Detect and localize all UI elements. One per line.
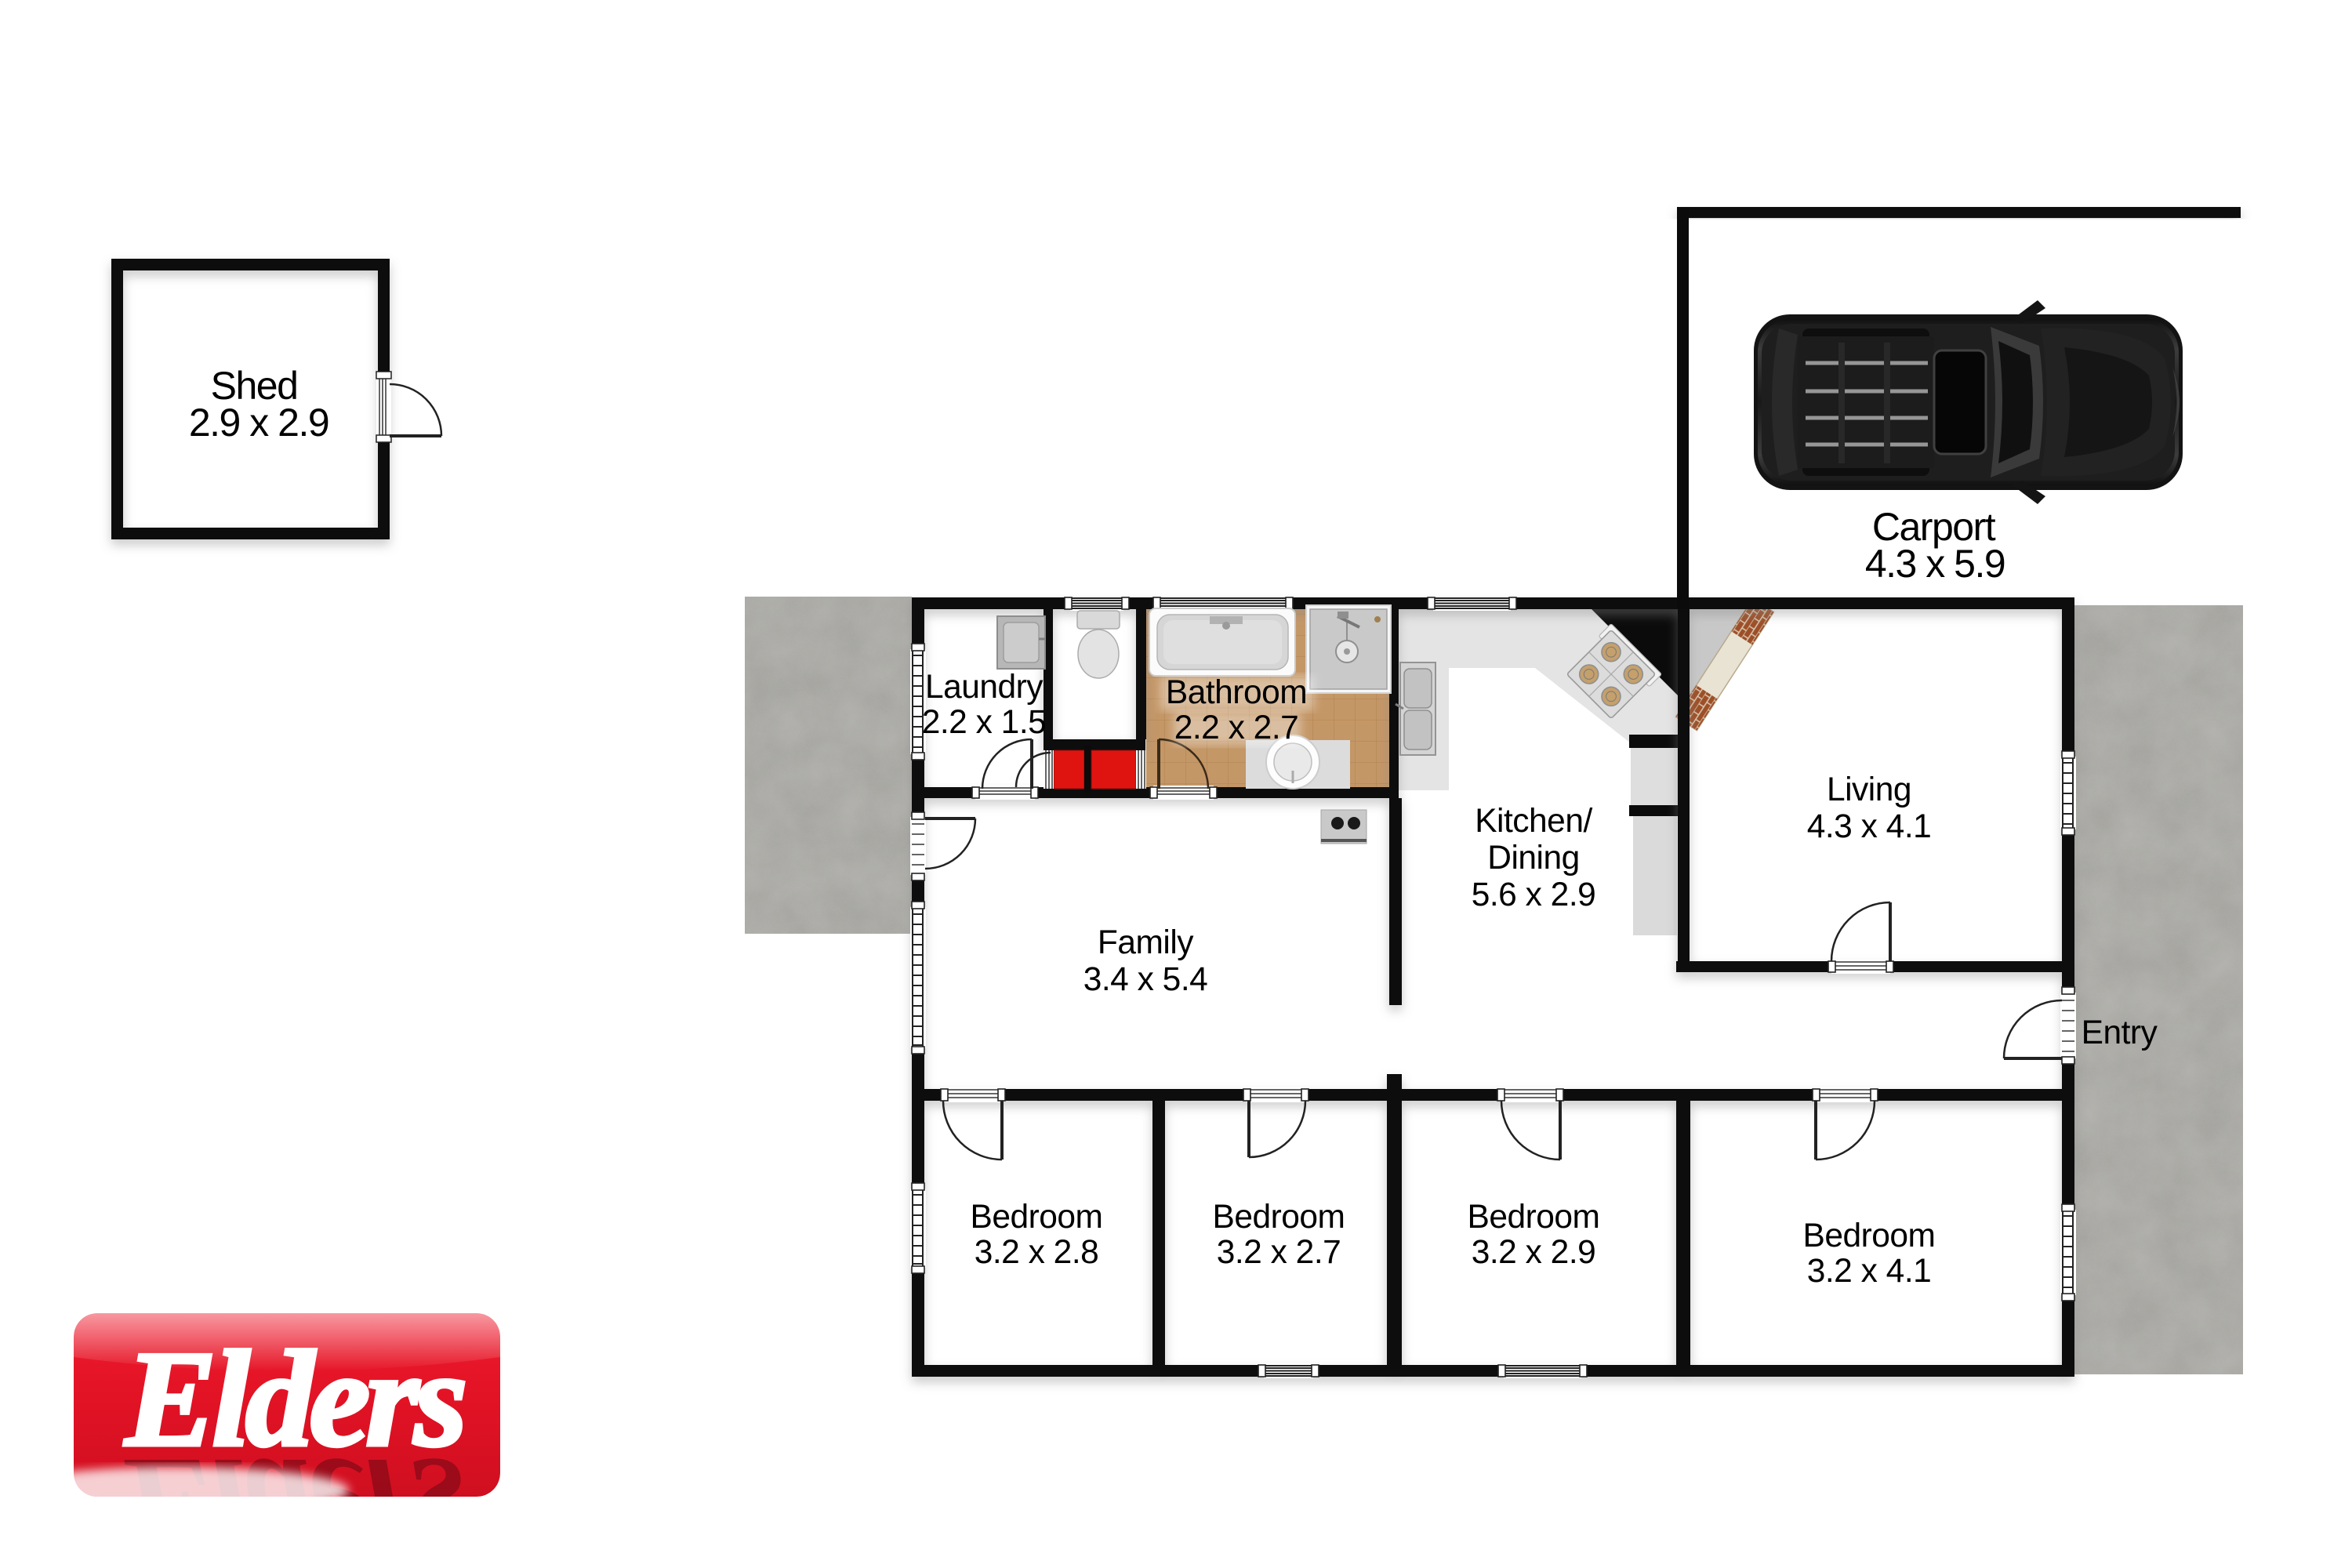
svg-text:3.2 x 2.9: 3.2 x 2.9 bbox=[1472, 1234, 1596, 1271]
svg-text:Dining: Dining bbox=[1487, 840, 1580, 877]
svg-text:Bedroom: Bedroom bbox=[1803, 1218, 1936, 1254]
svg-text:2.9 x 2.9: 2.9 x 2.9 bbox=[189, 401, 328, 445]
svg-text:Living: Living bbox=[1827, 771, 1911, 808]
svg-text:Bedroom: Bedroom bbox=[1468, 1199, 1600, 1236]
svg-text:Kitchen/: Kitchen/ bbox=[1475, 803, 1592, 840]
svg-text:2.2 x 2.7: 2.2 x 2.7 bbox=[1174, 710, 1299, 746]
svg-text:2.2 x 1.5: 2.2 x 1.5 bbox=[922, 704, 1047, 741]
svg-text:3.2 x 2.7: 3.2 x 2.7 bbox=[1217, 1234, 1341, 1271]
svg-text:Laundry: Laundry bbox=[925, 669, 1044, 706]
svg-text:Bedroom: Bedroom bbox=[1213, 1199, 1345, 1236]
svg-text:3.4 x 5.4: 3.4 x 5.4 bbox=[1083, 961, 1208, 998]
svg-text:4.3 x 5.9: 4.3 x 5.9 bbox=[1865, 542, 2005, 586]
svg-text:Bathroom: Bathroom bbox=[1166, 674, 1307, 711]
svg-text:Bedroom: Bedroom bbox=[971, 1199, 1103, 1236]
svg-text:3.2 x 2.8: 3.2 x 2.8 bbox=[975, 1234, 1099, 1271]
svg-text:5.6 x 2.9: 5.6 x 2.9 bbox=[1472, 877, 1596, 913]
svg-text:Family: Family bbox=[1098, 924, 1194, 961]
svg-text:4.3 x 4.1: 4.3 x 4.1 bbox=[1807, 808, 1932, 845]
svg-text:3.2 x 4.1: 3.2 x 4.1 bbox=[1807, 1253, 1932, 1290]
svg-text:Entry: Entry bbox=[2082, 1014, 2158, 1051]
svg-text:Elders: Elders bbox=[124, 1323, 464, 1475]
